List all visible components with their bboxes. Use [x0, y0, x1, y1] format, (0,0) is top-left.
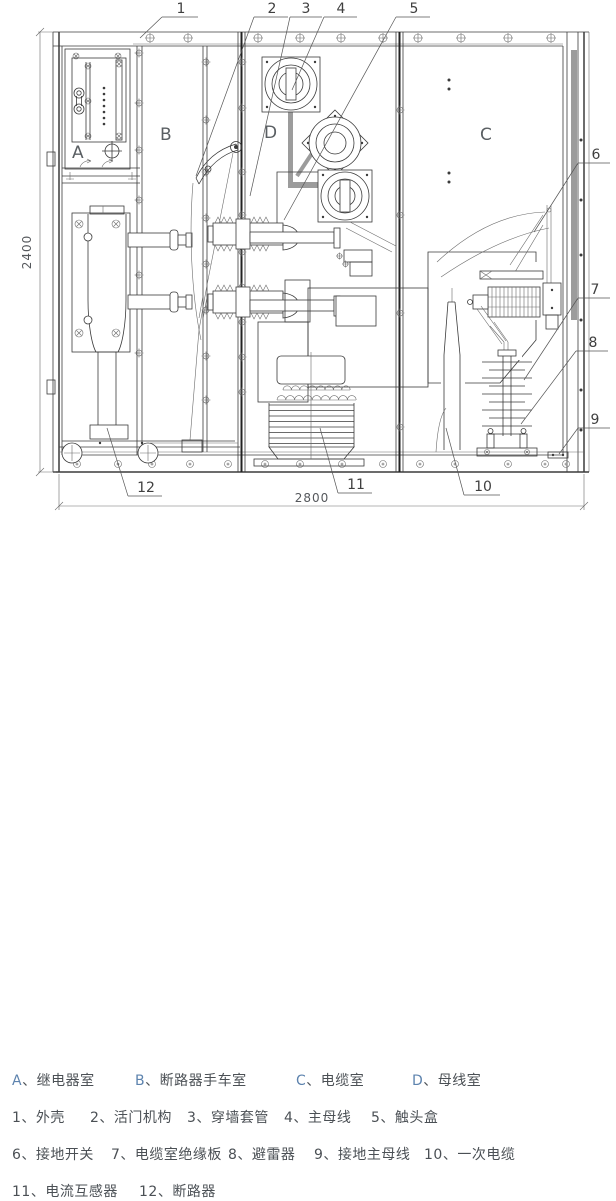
legend-item-ground-switch: 6、接地开关 — [12, 1144, 94, 1164]
crosshair-knob — [102, 141, 122, 161]
callouts: 1 2 3 4 5 6 7 8 9 10 11 12 — [107, 1, 610, 496]
callout-2: 2 — [268, 1, 277, 17]
legend-item-shutter-mechanism: 2、活门机构 — [90, 1107, 172, 1127]
legend-item-wall-bushing: 3、穿墙套管 — [187, 1107, 269, 1127]
label-compartment-a: A — [72, 143, 84, 163]
legend-item-contact-box: 5、触头盒 — [371, 1107, 438, 1127]
dimension-height: 2400 — [20, 28, 56, 476]
legend-item-breaker-handcart-room: B、断路器手车室 — [135, 1070, 247, 1090]
legend-item-current-transformer: 11、电流互感器 — [12, 1181, 118, 1201]
hook-icon — [102, 159, 113, 167]
legend-item-primary-cable: 10、一次电缆 — [424, 1144, 515, 1164]
legend-item-circuit-breaker: 12、断路器 — [139, 1181, 216, 1201]
contact-arm-lower — [128, 292, 192, 312]
handle-dumbbell — [74, 88, 84, 114]
page: { "drawing": { "compartment_labels": { "… — [0, 0, 616, 685]
switchgear-section-drawing: 2400 2800 A B C D 1 2 3 4 5 6 7 8 9 10 1… — [0, 0, 616, 530]
callout-5: 5 — [410, 1, 419, 17]
contact-arm-upper — [128, 230, 192, 250]
callout-1: 1 — [177, 1, 186, 17]
dimension-height-value: 2400 — [20, 235, 34, 270]
label-compartment-b: B — [160, 125, 172, 145]
wall-bushing-lower — [208, 285, 340, 319]
callout-12: 12 — [137, 480, 155, 496]
label-compartment-c: C — [480, 125, 492, 145]
callout-9: 9 — [591, 412, 600, 428]
callout-3: 3 — [302, 1, 311, 17]
wheel — [62, 443, 82, 463]
callout-4: 4 — [337, 1, 346, 17]
legend-item-arrester: 8、避雷器 — [228, 1144, 295, 1164]
legend-item-ground-main-busbar: 9、接地主母线 — [314, 1144, 410, 1164]
dimension-width: 2800 — [55, 474, 588, 510]
phase-connector-block — [336, 250, 372, 276]
dimension-width-value: 2800 — [295, 491, 330, 505]
callout-7: 7 — [591, 282, 600, 298]
busbar-bushing-middle — [302, 110, 368, 176]
compartment-letters: A B C D — [72, 123, 492, 163]
legend: A、继电器室 B、断路器手车室 C、电缆室 D、母线室 1、外壳 2、活门机构 … — [0, 530, 616, 685]
callout-8: 8 — [589, 335, 598, 351]
legend-item-insulation-board: 7、电缆室绝缘板 — [111, 1144, 222, 1164]
current-transformer — [254, 352, 364, 466]
callout-11: 11 — [347, 477, 365, 493]
legend-item-busbar-room: D、母线室 — [412, 1070, 481, 1090]
legend-item-relay-room: A、继电器室 — [12, 1070, 95, 1090]
callout-10: 10 — [474, 479, 492, 495]
busbar-bushing-bottom — [318, 170, 372, 222]
callout-6: 6 — [592, 147, 601, 163]
wheel — [138, 443, 158, 463]
legend-item-shell: 1、外壳 — [12, 1107, 65, 1127]
legend-item-main-busbar: 4、主母线 — [284, 1107, 351, 1127]
cable-room-marks — [448, 79, 451, 184]
legend-item-cable-room: C、电缆室 — [296, 1070, 364, 1090]
